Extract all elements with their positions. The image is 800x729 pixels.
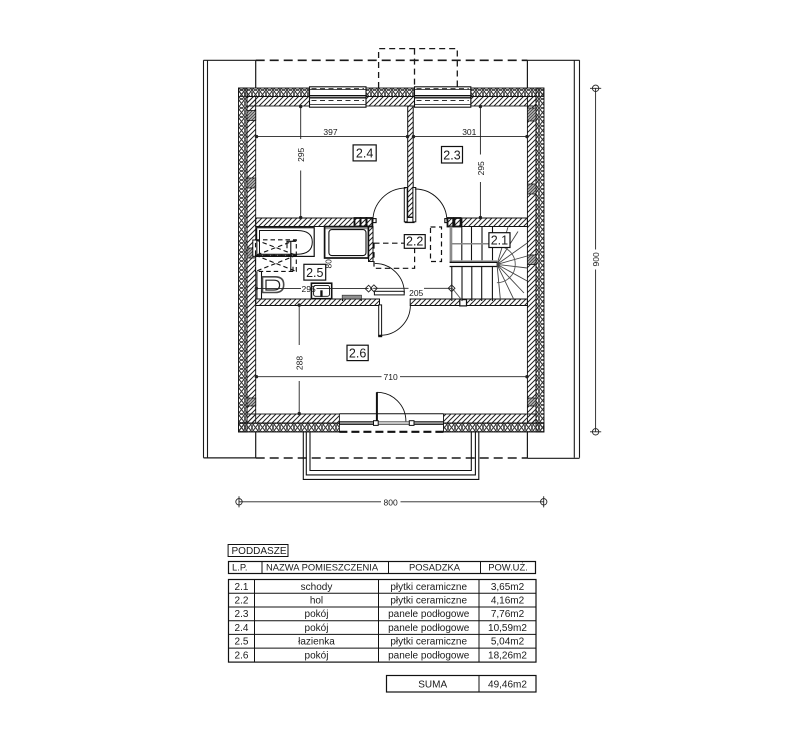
svg-text:L.P.: L.P. <box>232 562 247 573</box>
svg-text:2.4: 2.4 <box>356 147 373 161</box>
svg-text:10,59m2: 10,59m2 <box>488 623 527 634</box>
svg-text:2.5: 2.5 <box>306 266 323 280</box>
svg-text:łazienka: łazienka <box>298 637 335 648</box>
svg-text:301: 301 <box>462 127 476 137</box>
svg-text:2.1: 2.1 <box>491 234 508 248</box>
svg-text:2.6: 2.6 <box>235 650 249 661</box>
svg-text:panele podłogowe: panele podłogowe <box>388 609 470 620</box>
svg-text:2.4: 2.4 <box>235 623 249 634</box>
svg-text:schody: schody <box>301 582 333 593</box>
svg-text:710: 710 <box>384 372 398 382</box>
svg-text:295: 295 <box>296 147 306 161</box>
svg-text:NAZWA POMIESZCZENIA: NAZWA POMIESZCZENIA <box>266 562 379 573</box>
svg-text:80: 80 <box>323 259 333 269</box>
svg-text:płytki ceramiczne: płytki ceramiczne <box>390 637 467 648</box>
svg-text:397: 397 <box>323 127 337 137</box>
svg-text:panele podłogowe: panele podłogowe <box>388 650 470 661</box>
svg-text:POW.UŻ.: POW.UŻ. <box>488 562 528 573</box>
svg-text:2.3: 2.3 <box>443 149 460 163</box>
svg-text:panele podłogowe: panele podłogowe <box>388 623 470 634</box>
svg-text:295: 295 <box>476 161 486 175</box>
svg-text:pokój: pokój <box>305 623 329 634</box>
svg-text:3,65m2: 3,65m2 <box>491 582 525 593</box>
svg-text:7,76m2: 7,76m2 <box>491 609 525 620</box>
svg-text:PODDASZE: PODDASZE <box>232 546 287 557</box>
svg-text:SUMA: SUMA <box>418 680 447 691</box>
svg-text:2.1: 2.1 <box>235 582 249 593</box>
svg-text:płytki ceramiczne: płytki ceramiczne <box>390 582 467 593</box>
svg-text:POSADZKA: POSADZKA <box>409 562 461 573</box>
svg-text:2.3: 2.3 <box>235 609 249 620</box>
svg-text:18,26m2: 18,26m2 <box>488 650 527 661</box>
svg-text:800: 800 <box>384 497 398 507</box>
svg-text:hol: hol <box>310 596 323 607</box>
svg-text:pokój: pokój <box>305 650 329 661</box>
svg-text:pokój: pokój <box>305 609 329 620</box>
svg-text:205: 205 <box>409 288 423 298</box>
svg-text:4,16m2: 4,16m2 <box>491 596 525 607</box>
svg-text:295: 295 <box>302 284 316 294</box>
svg-text:2.5: 2.5 <box>235 637 249 648</box>
svg-text:2.2: 2.2 <box>235 596 249 607</box>
svg-text:2.6: 2.6 <box>349 347 366 361</box>
svg-text:288: 288 <box>295 356 305 370</box>
svg-text:płytki ceramiczne: płytki ceramiczne <box>390 596 467 607</box>
svg-text:2.2: 2.2 <box>406 235 423 249</box>
svg-text:49,46m2: 49,46m2 <box>488 680 527 691</box>
svg-text:5,04m2: 5,04m2 <box>491 637 525 648</box>
svg-text:900: 900 <box>591 252 601 266</box>
